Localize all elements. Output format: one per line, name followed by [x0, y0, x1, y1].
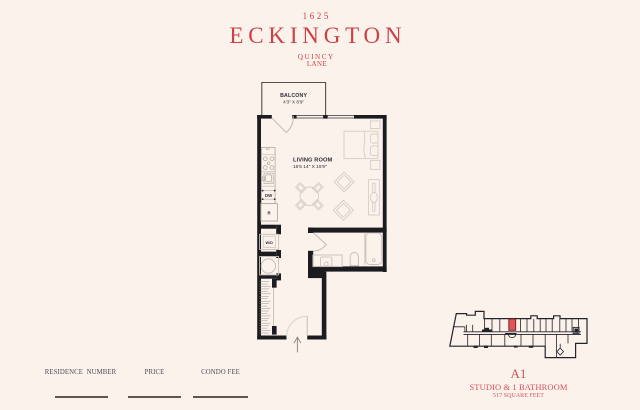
svg-text:BALCONY: BALCONY — [280, 93, 307, 99]
svg-text:LIVING ROOM: LIVING ROOM — [293, 158, 332, 164]
svg-text:W/D: W/D — [266, 241, 274, 245]
svg-text:DW: DW — [265, 193, 273, 198]
svg-text:16'5 14" X 15'9": 16'5 14" X 15'9" — [293, 164, 327, 170]
svg-text:R: R — [267, 211, 270, 216]
svg-text:4'3" X 8'9": 4'3" X 8'9" — [283, 99, 304, 104]
